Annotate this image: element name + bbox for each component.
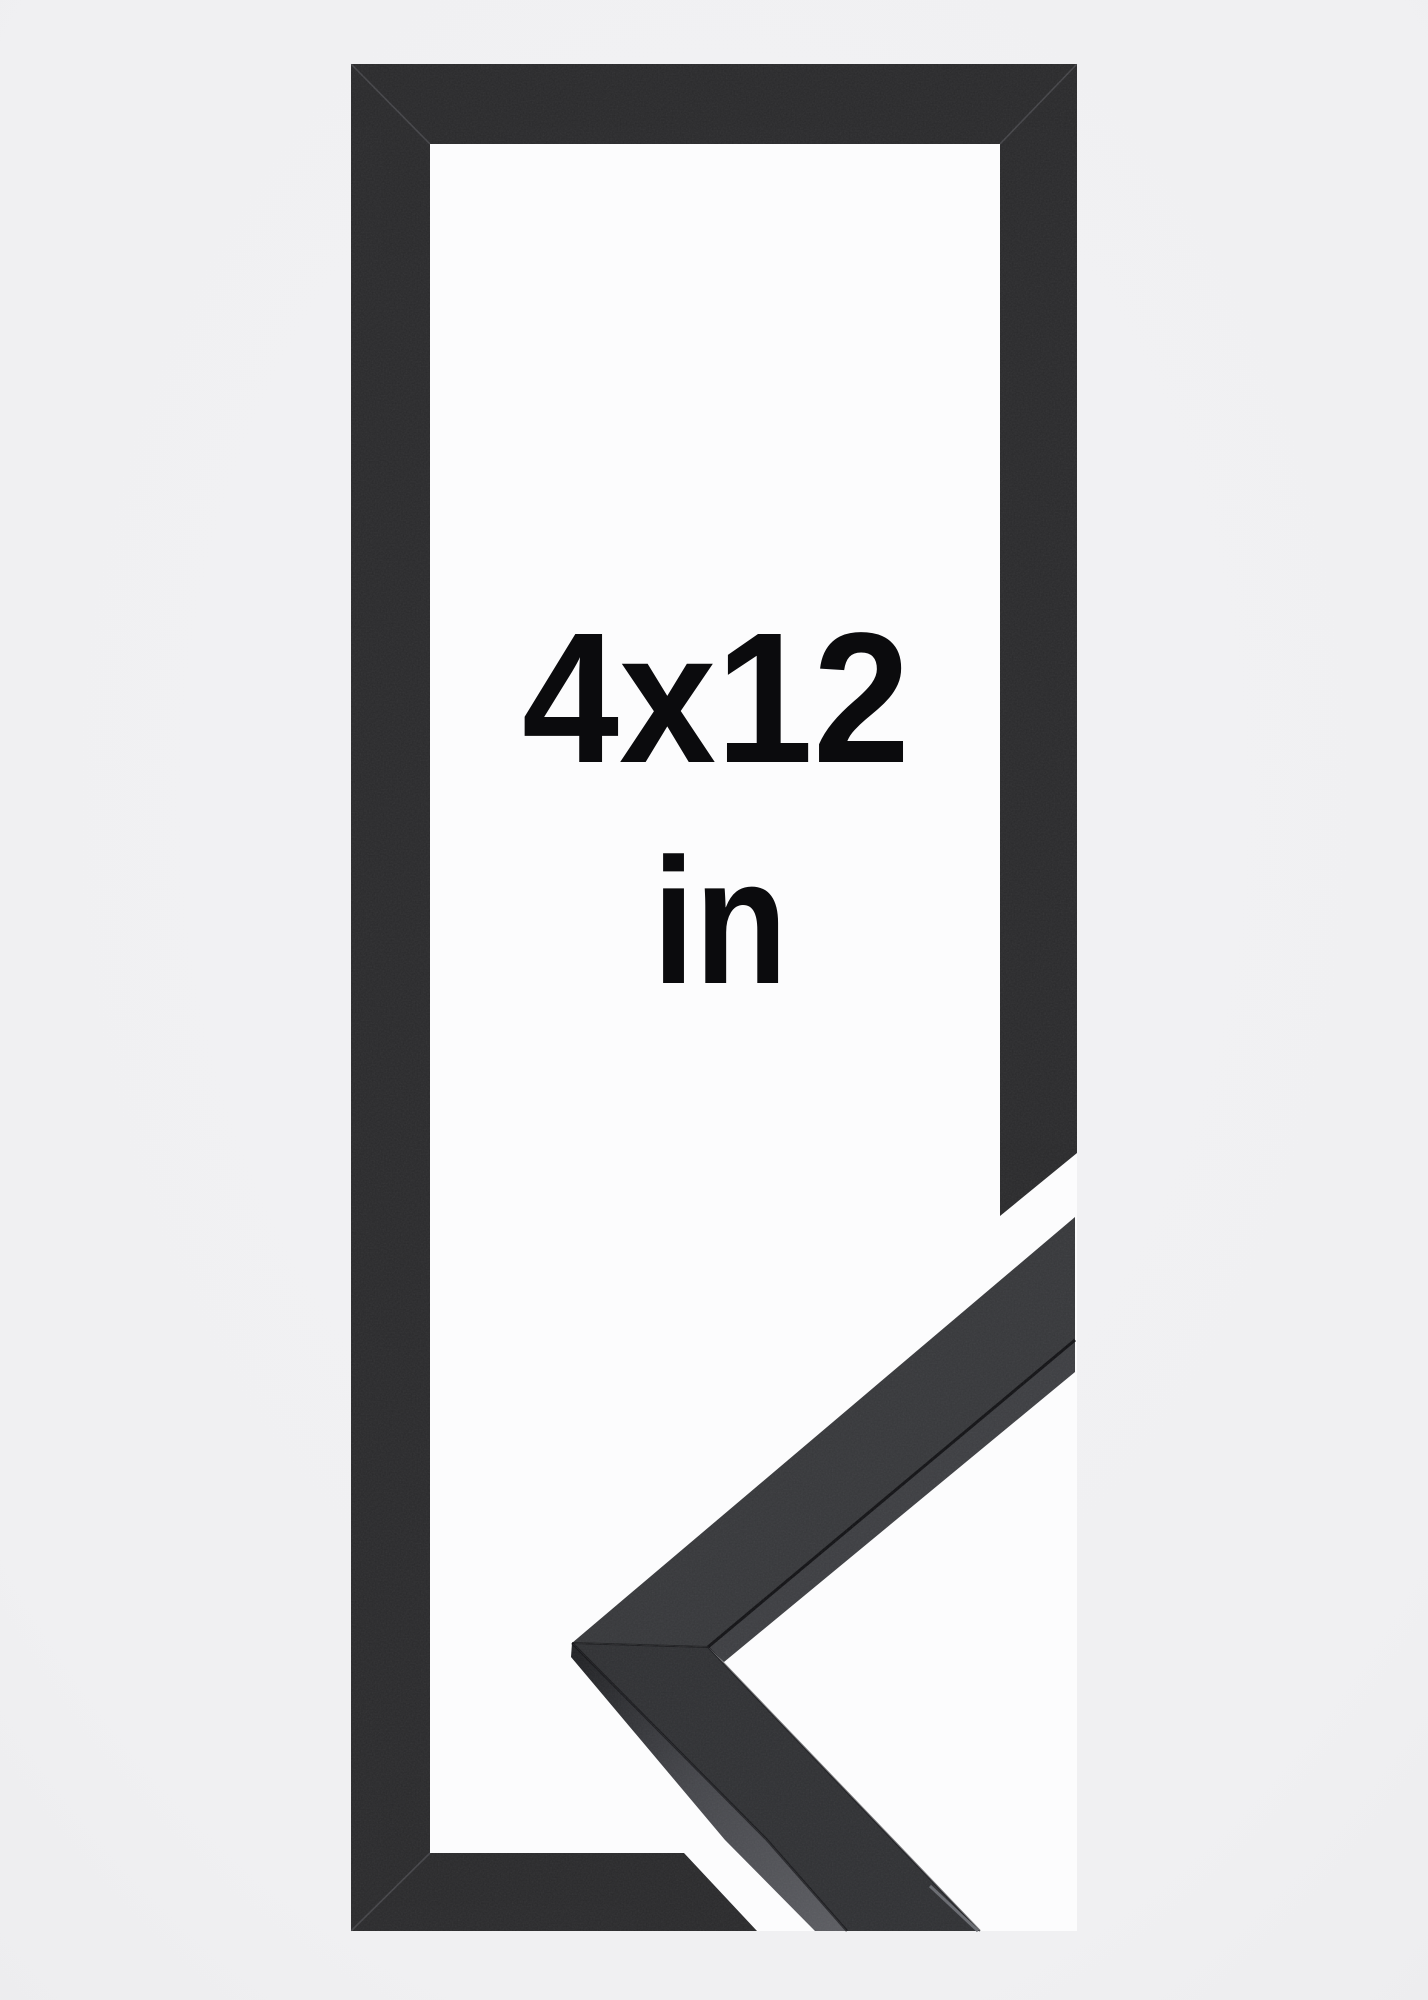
unit-label: in [653,821,788,1021]
frame-opening-backdrop [430,144,1077,1931]
frame-product-image: 4x12 in [0,0,1428,2000]
frame-product-svg: 4x12 in [0,0,1428,2000]
size-label: 4x12 [522,595,910,802]
